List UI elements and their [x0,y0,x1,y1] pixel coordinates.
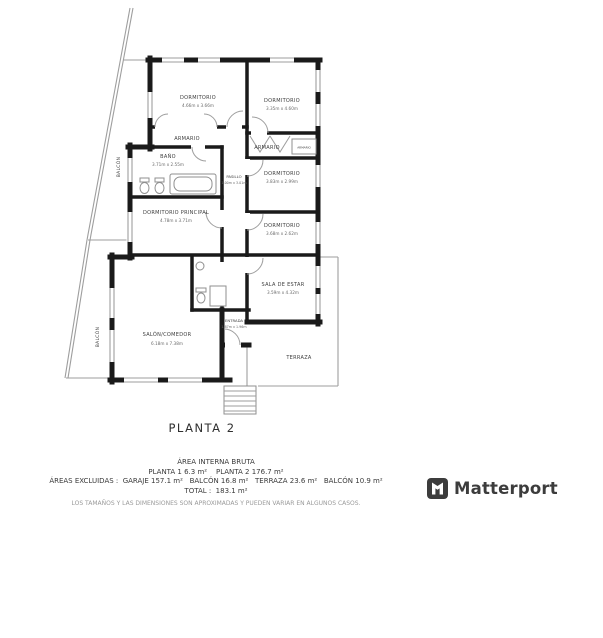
room-label-armario-2: ARMARIO [254,145,280,151]
bathtub-inner [174,177,212,191]
room-label-sala-de-estar: SALA DE ESTAR [262,282,305,288]
room-dims-dormitorio-principal: 4.78m x 3.71m [160,218,192,223]
matterport-logo: Matterport [427,478,558,499]
toilet2-icon [197,293,205,303]
room-dims-sala-de-estar: 3.59m x 4.32m [267,290,299,295]
room-dims-dormitorio-3: 3.83m x 2.99m [266,179,298,184]
room-label-balcon-2: BALCÓN [94,327,101,348]
room-dims-bano: 3.71m x 2.55m [152,162,184,167]
room-label-armario-1: ARMARIO [174,136,200,142]
toilet2-tank-icon [196,288,206,292]
room-dims-salon-comedor: 6.18m x 7.38m [151,341,183,346]
property-boundary-lines [65,8,150,378]
bathroom-fixtures [140,174,226,306]
stairs [224,386,256,414]
room-label-dormitorio-4: DORMITORIO [264,223,300,229]
shower-icon [210,286,226,306]
matterport-logo-text: Matterport [454,479,558,498]
sink-icon [196,262,204,270]
floor-plan: DORMITORIO 4.66m x 3.66m DORMITORIO 3.35… [0,0,603,450]
room-label-balcon-1: BALCÓN [115,157,122,178]
area-summary-heading: ÁREA INTERNA BRUTA [0,458,432,468]
room-label-terraza: TERRAZA [285,355,312,361]
matterport-logo-icon [427,478,448,499]
room-dims-dormitorio-1: 4.66m x 3.66m [182,103,214,108]
toilet-icon [140,183,149,194]
room-label-pasillo: PASILLO [226,174,241,179]
area-disclaimer: LOS TAMAÑOS Y LAS DIMENSIONES SON APROXI… [0,499,432,508]
area-summary-plantas: PLANTA 1 6.3 m² PLANTA 2 176.7 m² [0,468,432,478]
room-label-bano: BAÑO [160,153,176,160]
room-label-dormitorio-3: DORMITORIO [264,171,300,177]
area-summary-total: TOTAL : 183.1 m² [0,487,432,497]
room-dims-pasillo: 1.00m x 3.01m [221,181,246,185]
room-dims-entrada: 1.87m x 1.96m [221,325,246,329]
room-label-armario-3: ARMARIO [297,146,311,150]
toilet-tank-icon [140,178,149,182]
room-dims-dormitorio-2: 3.35m x 4.60m [266,106,298,111]
area-summary-excluded: ÁREAS EXCLUIDAS : GARAJE 157.1 m² BALCÓN… [0,477,432,487]
bidet-icon [155,183,164,194]
room-label-dormitorio-2: DORMITORIO [264,98,300,104]
room-label-dormitorio-principal: DORMITORIO PRINCIPAL [143,210,209,216]
bidet-tank-icon [155,178,164,182]
area-summary: ÁREA INTERNA BRUTA PLANTA 1 6.3 m² PLANT… [0,458,432,508]
plan-title: PLANTA 2 [0,421,404,435]
room-label-salon-comedor: SALÓN/COMEDOR [143,331,192,338]
room-label-dormitorio-1: DORMITORIO [180,95,216,101]
room-dims-dormitorio-4: 3.68m x 2.62m [266,231,298,236]
room-label-entrada: ENTRADA [225,318,243,323]
